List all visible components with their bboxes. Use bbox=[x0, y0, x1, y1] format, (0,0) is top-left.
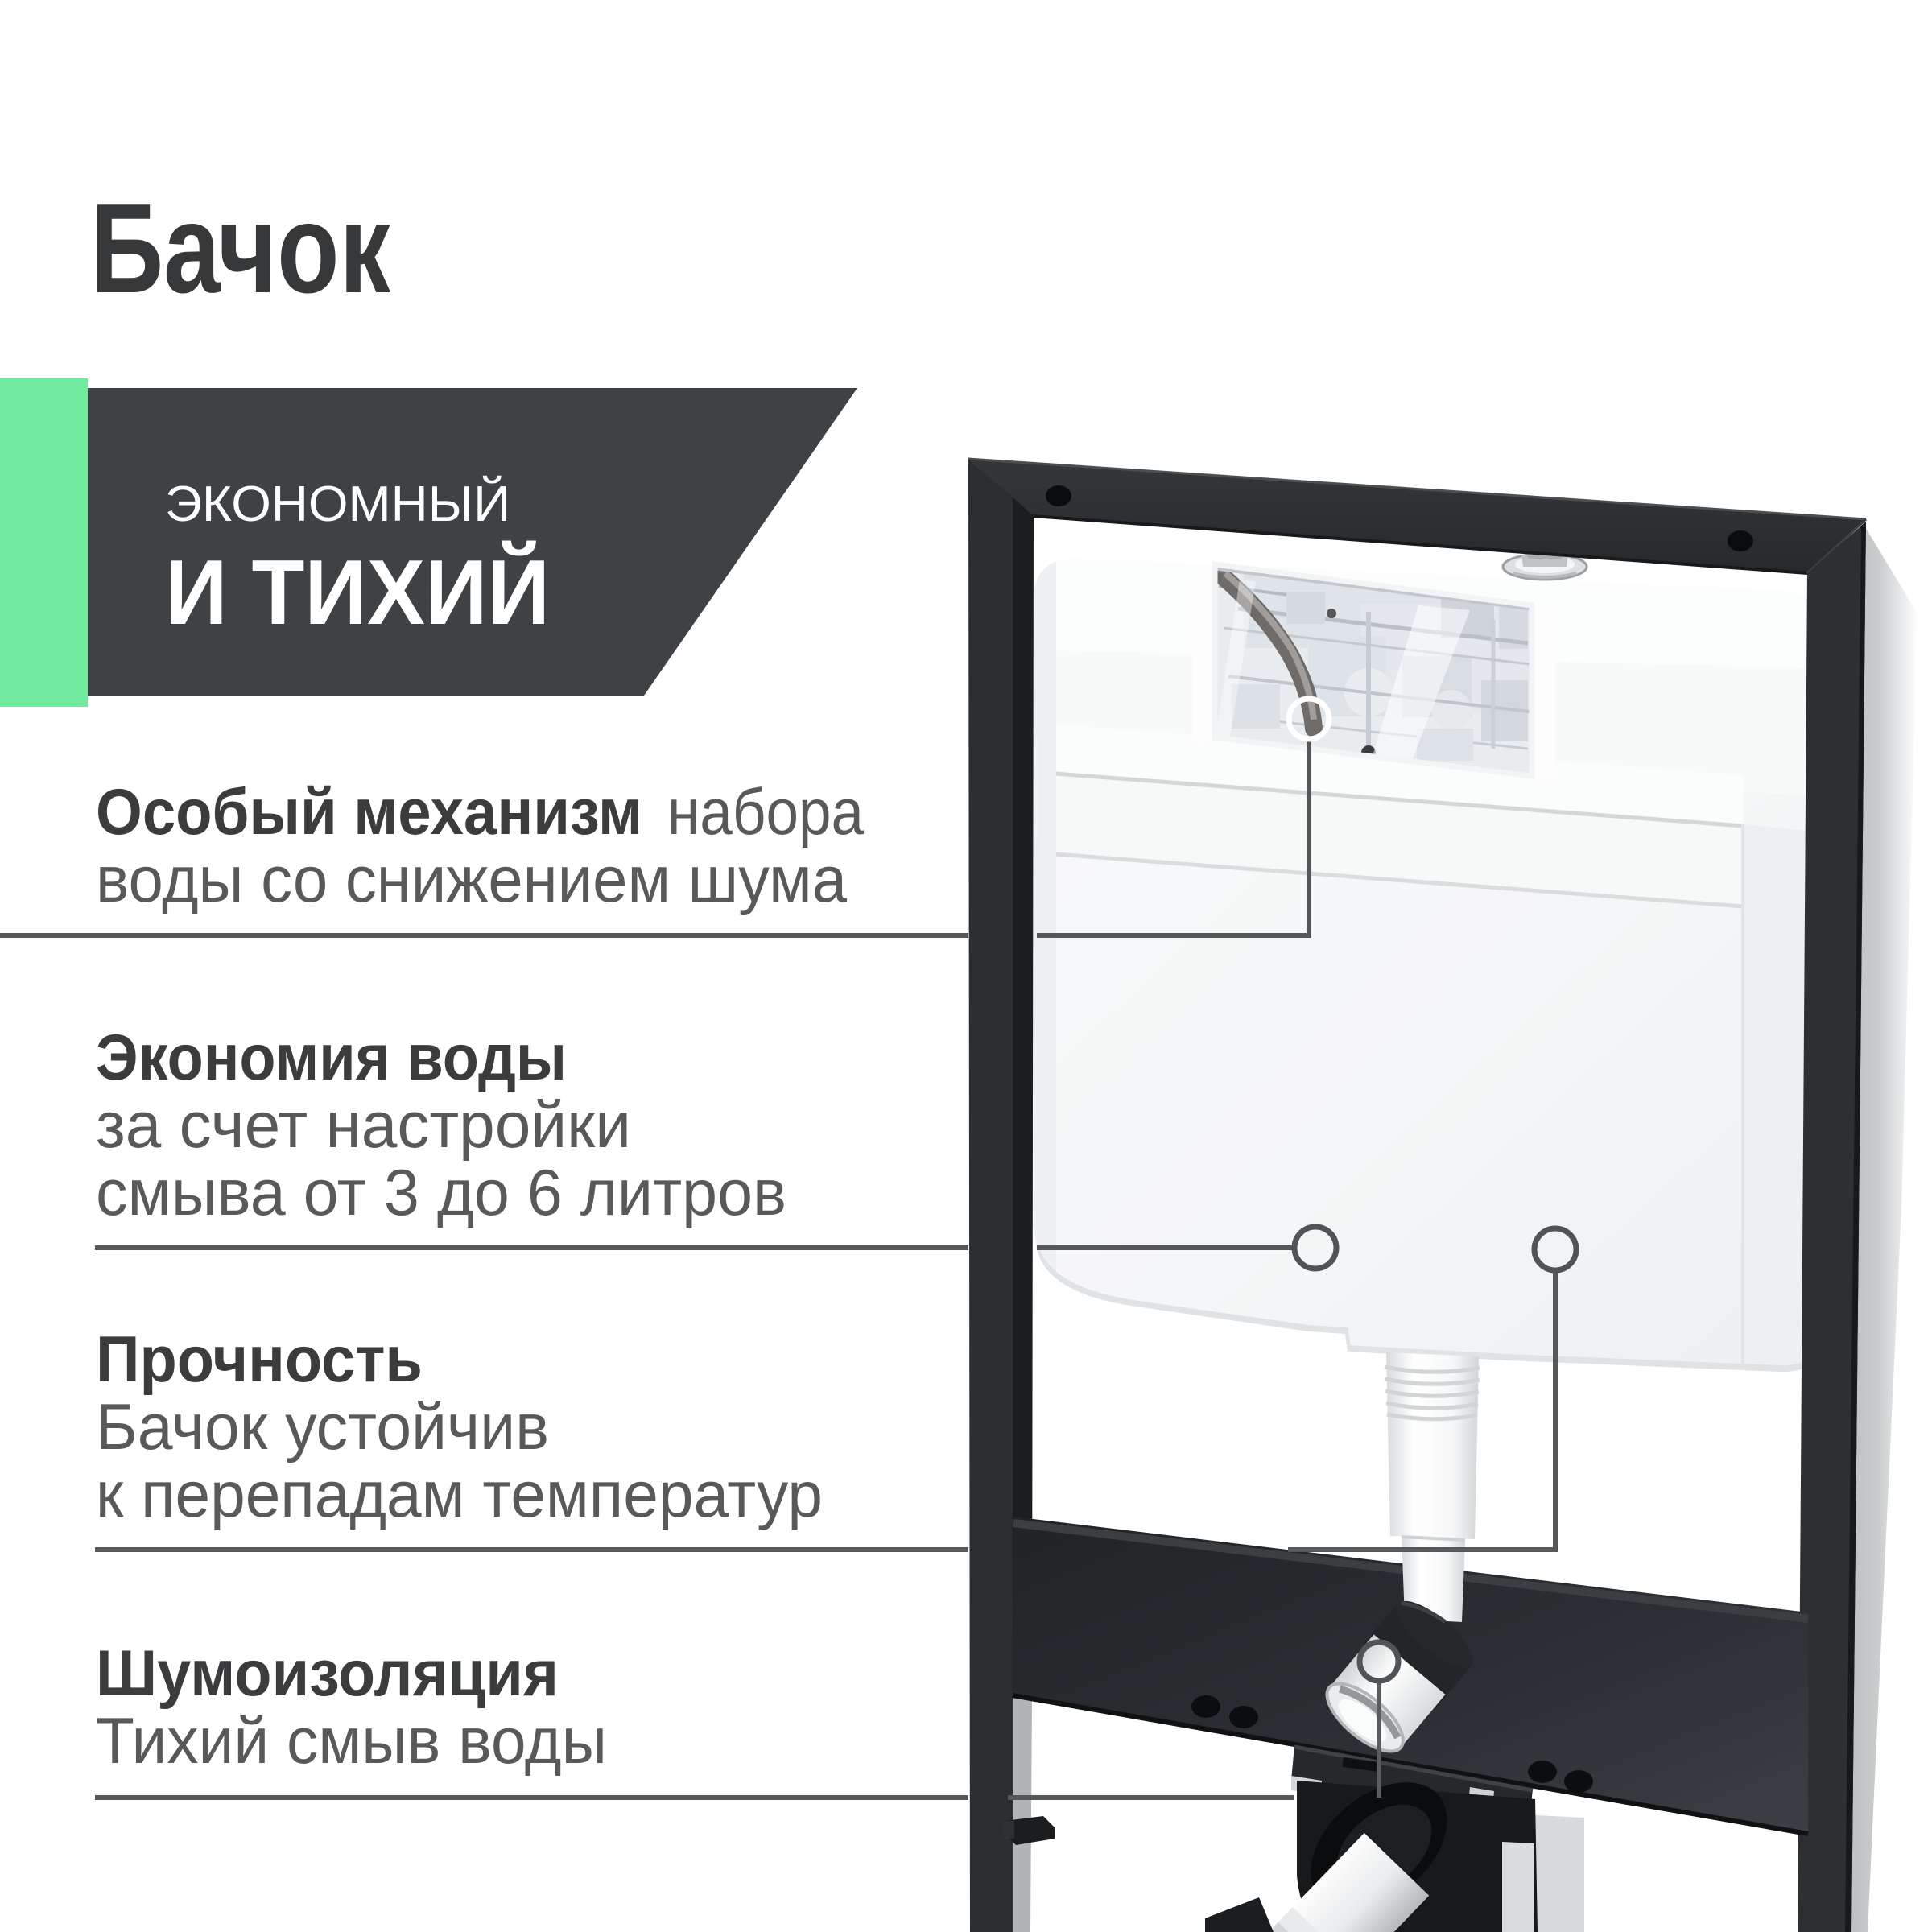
svg-text:Шумоизоляция: Шумоизоляция bbox=[96, 1637, 559, 1710]
svg-text:набора: набора bbox=[667, 776, 865, 848]
svg-text:ЭКОНОМНЫЙ: ЭКОНОМНЫЙ bbox=[165, 476, 510, 532]
svg-text:к перепадам температур: к перепадам температур bbox=[96, 1459, 823, 1531]
svg-text:воды со снижением шума: воды со снижением шума bbox=[96, 844, 848, 916]
svg-text:за счет настройки: за счет настройки bbox=[96, 1089, 631, 1162]
svg-text:Особый механизм: Особый механизм bbox=[96, 776, 642, 848]
svg-text:Тихий смыв воды: Тихий смыв воды bbox=[96, 1705, 607, 1777]
svg-text:Бачок устойчив: Бачок устойчив bbox=[96, 1391, 549, 1463]
svg-text:Бачок: Бачок bbox=[90, 178, 391, 320]
svg-text:И ТИХИЙ: И ТИХИЙ bbox=[165, 541, 550, 644]
svg-text:смыва от 3 до 6 литров: смыва от 3 до 6 литров bbox=[96, 1157, 786, 1229]
svg-text:Экономия воды: Экономия воды bbox=[96, 1022, 567, 1094]
svg-text:Прочность: Прочность bbox=[96, 1323, 423, 1396]
